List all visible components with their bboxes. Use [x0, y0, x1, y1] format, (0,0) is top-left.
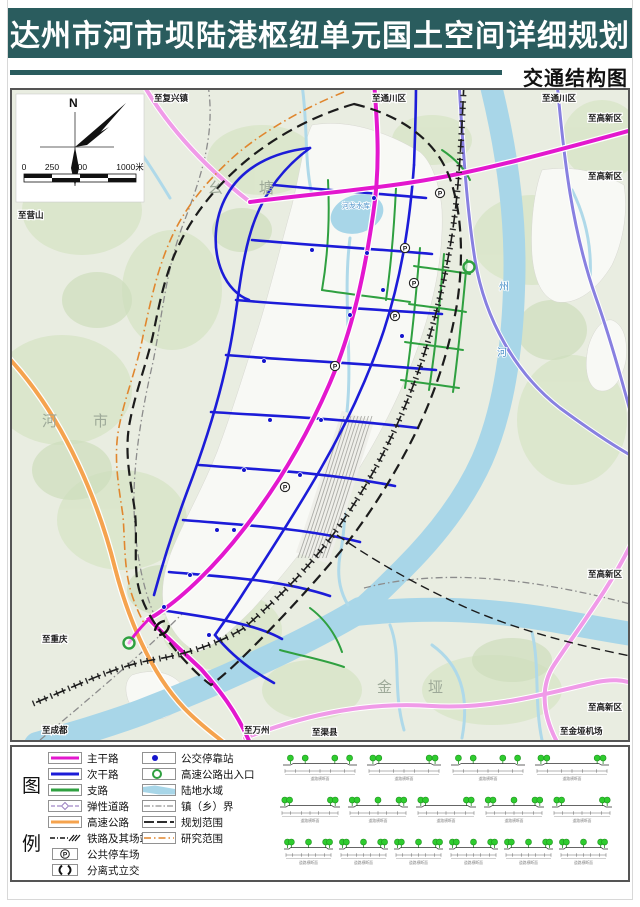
bus-stop-icon [298, 473, 303, 478]
tree-icon [426, 755, 432, 761]
legend-item-highway-entrance: 高速公路出入口 [142, 766, 255, 782]
tree-icon [594, 755, 600, 761]
plan-sheet: 达州市河市坝陆港枢纽单元国土空间详细规划 交通结构图 [8, 0, 632, 899]
tree-icon [432, 755, 438, 761]
tree-icon [500, 755, 506, 761]
parking-icon: P [409, 278, 418, 287]
legend-item-secondary: 次干路 [48, 766, 150, 782]
tree-icon [288, 839, 294, 845]
bus-stop-icon [381, 288, 386, 293]
cross-section-diagram: 道路横断面 [504, 839, 553, 865]
svg-text:道路横断面: 道路横断面 [301, 818, 320, 823]
subtitle-rule [10, 70, 502, 75]
map-frame: PPPPPP 至复兴镇至通川区至通川区至高新区至高新区至高新区至高新区至营山至重… [10, 88, 630, 742]
bus-stop-icon [242, 468, 247, 473]
cross-section-diagram: 道路横断面 [283, 755, 357, 781]
cross-section-diagram: 道路横断面 [484, 797, 544, 823]
tree-icon [453, 839, 459, 845]
map-label: 至通川区 [372, 93, 407, 103]
legend-item-trunk: 主干路 [48, 750, 150, 766]
map-label: 至高新区 [588, 171, 623, 181]
subtitle-row: 交通结构图 [10, 58, 630, 88]
map-label: 至复兴镇 [154, 93, 189, 103]
cross-section-diagram: 道路横断面 [535, 755, 609, 781]
map-label: 至通川区 [542, 93, 577, 103]
svg-text:道路横断面: 道路横断面 [519, 860, 538, 865]
parking-icon: P [400, 243, 409, 252]
parking-icon: P [390, 311, 399, 320]
legend-item-branch: 支路 [48, 782, 150, 798]
tree-icon [361, 839, 367, 845]
svg-text:道路横断面: 道路横断面 [563, 776, 582, 781]
bus-stop-icon [372, 196, 377, 201]
cross-section-diagram: 道路横断面 [284, 839, 333, 865]
tree-icon [602, 839, 608, 845]
cross-section-diagram: 道路横断面 [451, 755, 525, 781]
title-banner: 达州市河市坝陆港枢纽单元国土空间详细规划 [8, 8, 632, 58]
map-label: 河 [497, 347, 507, 359]
cross-section-diagram: 道路横断面 [559, 839, 608, 865]
svg-text:道路横断面: 道路横断面 [369, 818, 388, 823]
tree-icon [471, 839, 477, 845]
map-label: 州 [499, 281, 509, 293]
road-cross-sections: 道路横断面道路横断面道路横断面道路横断面道路横断面道路横断面道路横断面道路横断面… [270, 748, 622, 878]
legend-item-bus-stop: 公交停靠站 [142, 750, 255, 766]
map-label: 至万州 [244, 725, 270, 735]
tree-icon [544, 755, 550, 761]
tree-icon [401, 797, 407, 803]
tree-icon [470, 755, 476, 761]
svg-text:P: P [283, 485, 288, 492]
svg-text:道路横断面: 道路横断面 [311, 776, 330, 781]
legend-item-town-boundary: 镇（乡）界 [142, 798, 255, 814]
tree-icon [537, 797, 543, 803]
tree-icon [375, 797, 381, 803]
legend-column-2: 公交停靠站 高速公路出入口 陆地水域 镇（乡）界 规划范围 研究范围 [142, 750, 255, 846]
tree-icon [468, 797, 474, 803]
tree-icon [376, 755, 382, 761]
map-subtitle: 交通结构图 [523, 62, 628, 91]
tree-icon [287, 755, 293, 761]
tree-icon [563, 839, 569, 845]
svg-text:道路横断面: 道路横断面 [409, 860, 428, 865]
map-label: 至高新区 [588, 113, 623, 123]
highway-entrance-icon [464, 262, 475, 273]
tree-icon [302, 755, 308, 761]
tree-icon [287, 797, 293, 803]
bus-stop-icon [400, 334, 405, 339]
cross-section-diagram: 道路横断面 [394, 839, 443, 865]
map-label: 至高新区 [588, 569, 623, 579]
map-label: 至成都 [42, 725, 68, 735]
map-label: 金垭 [377, 679, 479, 696]
tree-icon [370, 755, 376, 761]
legend-item-water-area: 陆地水域 [142, 782, 255, 798]
tree-icon [492, 839, 498, 845]
cross-section-diagram: 道路横断面 [416, 797, 476, 823]
page-title: 达州市河市坝陆港枢纽单元国土空间详细规划 [10, 11, 630, 55]
svg-text:P: P [333, 364, 338, 371]
map-label: 河市 [42, 413, 144, 430]
svg-text:道路横断面: 道路横断面 [574, 860, 593, 865]
legend-panel: 图 例 主干路 次干路 支路 弹性道路 高速公路 [10, 745, 630, 882]
legend-item-railway: 铁路及其场站 [48, 830, 150, 846]
tree-icon [559, 797, 565, 803]
parking-icon: P [330, 361, 339, 370]
map-label: 至金垭机场 [560, 726, 603, 736]
svg-text:道路横断面: 道路横断面 [505, 818, 524, 823]
map-label: 幺塘 [208, 180, 310, 197]
tree-icon [437, 839, 443, 845]
tree-icon [508, 839, 514, 845]
cross-section-diagram: 道路横断面 [367, 755, 441, 781]
compass-scale-box: N 02505001000米 [16, 94, 144, 202]
bus-stop-icon [188, 573, 193, 578]
legend-char-tu: 图 [22, 771, 41, 798]
map-label: 至重庆 [42, 634, 68, 644]
map-label: 至渠县 [312, 727, 338, 737]
parking-icon: P [435, 188, 444, 197]
tree-icon [600, 755, 606, 761]
svg-text:P: P [63, 851, 68, 858]
legend-item-highway: 高速公路 [48, 814, 150, 830]
tree-icon [581, 839, 587, 845]
tree-icon [343, 839, 349, 845]
cross-section-diagram: 道路横断面 [449, 839, 498, 865]
cross-section-diagram: 道路横断面 [552, 797, 612, 823]
tree-icon [526, 839, 532, 845]
bus-stop-icon [268, 418, 273, 423]
map-label: 河龙水库 [342, 201, 370, 210]
legend-item-parking: P 公共停车场 [48, 846, 150, 862]
legend-item-elastic: 弹性道路 [48, 798, 150, 814]
tree-icon [332, 797, 338, 803]
bus-stop-icon [262, 359, 267, 364]
tree-icon [398, 839, 404, 845]
tree-icon [354, 797, 360, 803]
tree-icon [347, 755, 353, 761]
svg-text:P: P [412, 281, 417, 288]
legend-item-research-boundary: 研究范围 [142, 830, 255, 846]
svg-text:P: P [438, 191, 443, 198]
svg-text:P: P [393, 314, 398, 321]
bus-stop-icon [310, 248, 315, 253]
cross-section-diagram: 道路横断面 [339, 839, 388, 865]
tree-icon [490, 797, 496, 803]
svg-text:道路横断面: 道路横断面 [573, 818, 592, 823]
map-label: 至营山 [18, 210, 44, 220]
bus-stop-icon [348, 313, 353, 318]
bus-stop-icon [162, 605, 167, 610]
bus-stop-icon [365, 251, 370, 256]
tree-icon [423, 797, 429, 803]
svg-text:500: 500 [73, 162, 87, 172]
tree-icon [515, 755, 521, 761]
bus-stop-icon [319, 418, 324, 423]
legend-column-1: 主干路 次干路 支路 弹性道路 高速公路 铁路及其场站 [48, 750, 150, 878]
tree-icon [538, 755, 544, 761]
legend-title: 图 例 [22, 747, 46, 880]
tree-icon [416, 839, 422, 845]
tree-icon [604, 797, 610, 803]
bus-stop-icon [215, 528, 220, 533]
tree-icon [327, 839, 333, 845]
svg-text:N: N [69, 96, 78, 110]
svg-text:道路横断面: 道路横断面 [479, 776, 498, 781]
bus-stop-icon [232, 528, 237, 533]
legend-item-planning-boundary: 规划范围 [142, 814, 255, 830]
tree-icon [511, 797, 517, 803]
tree-icon [455, 755, 461, 761]
legend-char-li: 例 [22, 829, 41, 856]
bus-stop-icon [207, 633, 212, 638]
svg-text:道路横断面: 道路横断面 [395, 776, 414, 781]
svg-text:道路横断面: 道路横断面 [354, 860, 373, 865]
svg-text:0: 0 [22, 162, 27, 172]
svg-text:P: P [403, 246, 408, 253]
cross-section-diagram: 道路横断面 [348, 797, 408, 823]
svg-text:1000米: 1000米 [116, 162, 144, 172]
tree-icon [306, 839, 312, 845]
legend-item-interchange: 分离式立交 [48, 862, 150, 878]
svg-text:道路横断面: 道路横断面 [437, 818, 456, 823]
svg-text:道路横断面: 道路横断面 [299, 860, 318, 865]
parking-icon: P [280, 482, 289, 491]
tree-icon [547, 839, 553, 845]
svg-text:250: 250 [45, 162, 59, 172]
highway-entrance-icon [124, 638, 135, 649]
tree-icon [382, 839, 388, 845]
tree-icon [332, 755, 338, 761]
traffic-structure-map: PPPPPP 至复兴镇至通川区至通川区至高新区至高新区至高新区至高新区至营山至重… [12, 90, 628, 740]
map-label: 至高新区 [588, 702, 623, 712]
cross-section-diagram: 道路横断面 [280, 797, 340, 823]
svg-text:道路横断面: 道路横断面 [464, 860, 483, 865]
